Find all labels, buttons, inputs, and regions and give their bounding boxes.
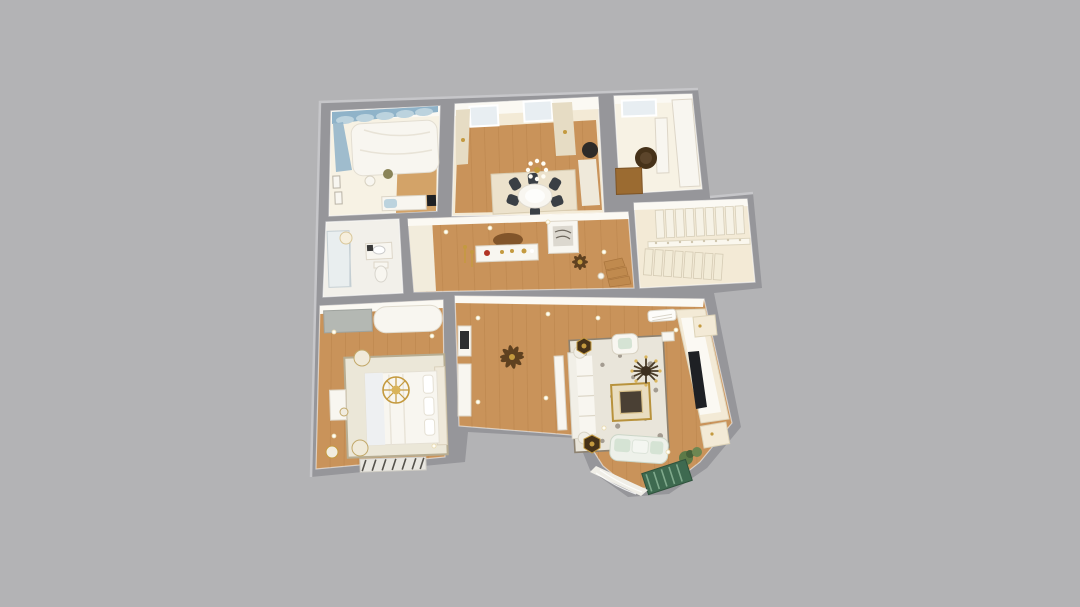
toilet bbox=[375, 266, 387, 282]
nightstand bbox=[354, 350, 370, 366]
striped-bench bbox=[360, 457, 426, 472]
living-chandelier bbox=[630, 355, 661, 386]
sill-plant bbox=[692, 447, 702, 457]
room-bedroom-top-left bbox=[329, 106, 440, 216]
pillow bbox=[423, 375, 434, 393]
ceiling-pendant bbox=[365, 176, 375, 186]
hex-table-inlay bbox=[590, 442, 595, 447]
curtain-right bbox=[552, 102, 576, 156]
duvet-throw bbox=[365, 373, 386, 446]
wood-cabinet bbox=[616, 168, 643, 195]
curtain-tieback bbox=[563, 130, 567, 134]
ceiling-light bbox=[340, 232, 352, 244]
study-desk bbox=[655, 118, 669, 173]
loveseat bbox=[609, 434, 669, 464]
vanity-stool bbox=[340, 408, 348, 416]
media-dark-panel bbox=[460, 331, 469, 349]
study-window bbox=[622, 99, 657, 116]
armchair-cushion bbox=[640, 152, 652, 164]
room-hallway bbox=[408, 210, 634, 294]
room-dining bbox=[452, 97, 604, 219]
floor-lamp bbox=[582, 142, 598, 158]
wall-art bbox=[662, 332, 674, 342]
stair-upper-flight bbox=[655, 206, 744, 239]
pillow bbox=[424, 419, 435, 435]
hex-table-inlay bbox=[582, 344, 587, 349]
blue-stool bbox=[384, 199, 397, 208]
room-bathroom bbox=[323, 219, 403, 297]
gold-side-table bbox=[326, 446, 338, 458]
dining-chandelier bbox=[526, 159, 548, 181]
counter-accent bbox=[367, 245, 373, 251]
room-stair-hall bbox=[634, 199, 755, 288]
master-bed bbox=[365, 367, 448, 448]
render-canvas bbox=[0, 0, 1080, 607]
window-right bbox=[523, 100, 552, 121]
plant bbox=[383, 169, 393, 179]
cabinet-knob bbox=[710, 432, 713, 435]
pillow bbox=[424, 397, 435, 415]
curtain-tieback bbox=[461, 138, 465, 142]
wardrobe bbox=[324, 309, 373, 333]
gold-chandelier bbox=[383, 377, 409, 403]
cabinet-knob bbox=[698, 324, 701, 327]
sink bbox=[373, 246, 385, 254]
small-tv bbox=[427, 195, 436, 206]
upper-cabinet bbox=[693, 315, 717, 337]
armchair-cushion bbox=[618, 338, 633, 350]
tall-cabinet bbox=[458, 364, 471, 416]
floor-plan bbox=[0, 0, 1080, 607]
room-study bbox=[614, 94, 702, 194]
curtain-left bbox=[456, 109, 470, 165]
lower-cabinet bbox=[700, 422, 729, 448]
nightstand bbox=[352, 440, 368, 456]
main-sofa bbox=[567, 346, 596, 445]
room-master-bedroom bbox=[316, 300, 448, 472]
canopy-bed bbox=[351, 120, 440, 176]
table-setting bbox=[525, 189, 545, 203]
window-left bbox=[469, 105, 498, 126]
hallway-ceiling-fan bbox=[572, 254, 588, 270]
chaise bbox=[374, 305, 443, 333]
coffee-table bbox=[611, 383, 651, 421]
